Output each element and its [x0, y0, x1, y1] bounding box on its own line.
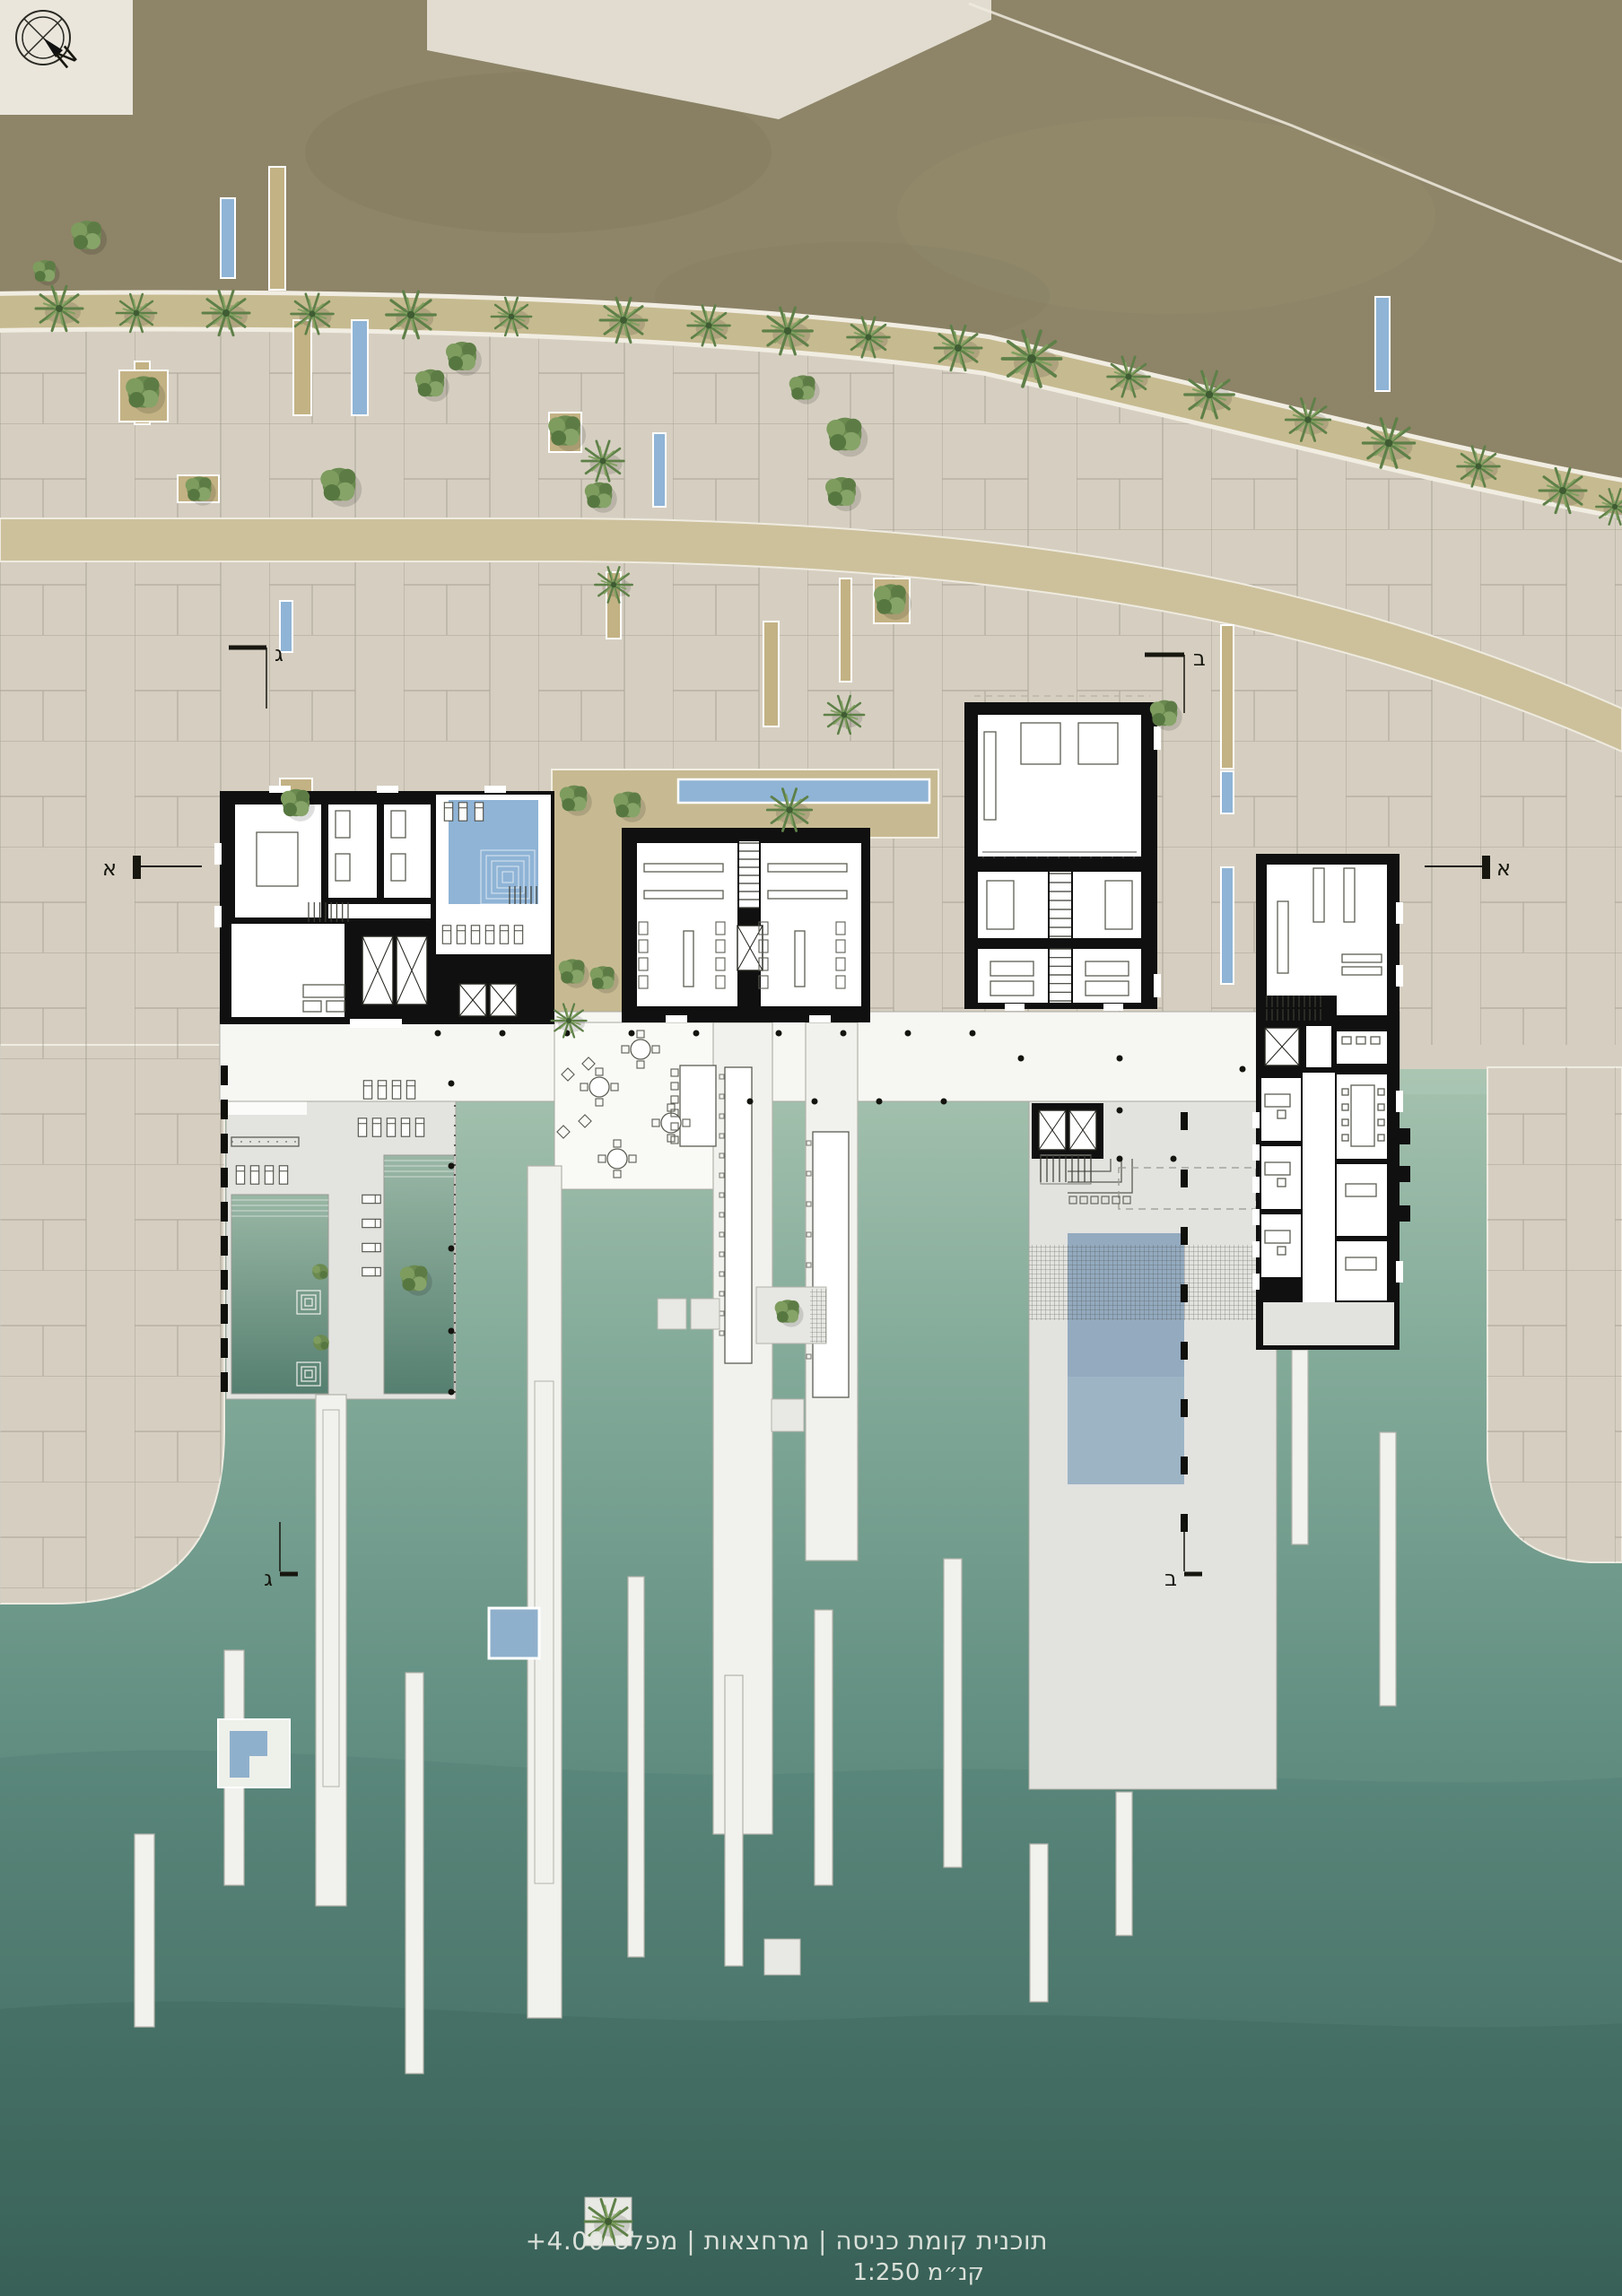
- waterside-terrace: [1263, 1302, 1394, 1345]
- lounge-chair-icon: [265, 1166, 273, 1184]
- colonnade-dash: [1181, 1342, 1188, 1360]
- dashed-wall-segment: [221, 1270, 228, 1290]
- lounge-chair-icon: [444, 803, 452, 821]
- column-dot: [776, 1031, 782, 1037]
- elevator-shaft: [397, 936, 427, 1004]
- lounge-chair-icon: [415, 1118, 423, 1136]
- column-dot: [1117, 1108, 1123, 1114]
- column-dot: [841, 1031, 847, 1037]
- long-counter: [725, 1067, 752, 1363]
- lounge-chair-icon: [372, 1118, 380, 1136]
- column-dot: [629, 1031, 635, 1037]
- elevator-shaft: [490, 984, 517, 1016]
- elevator-shaft: [459, 984, 486, 1016]
- pier: [1030, 1844, 1048, 2002]
- dashed-wall-segment: [221, 1338, 228, 1358]
- column-dot: [747, 1099, 754, 1105]
- dashed-wall-segment: [221, 1236, 228, 1256]
- column-dot: [449, 1246, 455, 1252]
- column-dot: [449, 1328, 455, 1335]
- lounge-chair-icon: [279, 1166, 287, 1184]
- shrub-icon: [312, 1264, 328, 1280]
- column-dot: [1117, 1156, 1123, 1162]
- pergola-pool: [1068, 1377, 1184, 1484]
- column-dot: [693, 1031, 700, 1037]
- lounge-chair-icon: [471, 926, 479, 944]
- pier: [944, 1559, 962, 1867]
- lounge-chair-icon: [363, 1081, 371, 1099]
- lounge-chair-icon: [485, 926, 493, 944]
- lounge-chair-icon: [442, 926, 450, 944]
- svg-text:ג: ג: [275, 641, 283, 666]
- column-dot: [905, 1031, 911, 1037]
- dashed-wall-segment: [221, 1134, 228, 1153]
- pier: [528, 1166, 562, 2018]
- dashed-wall-segment: [221, 1372, 228, 1392]
- pier: [815, 1610, 833, 1885]
- building-treatment-rooms: [964, 696, 1161, 1011]
- lounge-chair-icon: [362, 1267, 380, 1275]
- pier: [1116, 1792, 1132, 1935]
- lounge-chair-icon: [387, 1118, 395, 1136]
- lounge-chair-icon: [457, 926, 465, 944]
- dashed-wall-segment: [221, 1065, 228, 1085]
- column-dot: [941, 1099, 947, 1105]
- site-plan-drawing: א א ב ב ג ג: [0, 0, 1622, 2296]
- column-dot: [500, 1031, 506, 1037]
- lobby: [231, 924, 344, 1017]
- pier: [135, 1834, 154, 2027]
- plan-scale: קנ״מ 1:250: [853, 2259, 984, 2286]
- svg-text:ג: ג: [264, 1566, 273, 1591]
- column-dot: [876, 1099, 883, 1105]
- column-dot: [1117, 1056, 1123, 1062]
- lounge-chair-icon: [401, 1118, 409, 1136]
- dashed-wall-segment: [221, 1304, 228, 1324]
- svg-text:א: א: [1496, 856, 1511, 881]
- elevator-shaft: [362, 936, 393, 1004]
- sea-pool-deck: [226, 1065, 456, 1399]
- elevator-shaft: [1265, 1028, 1299, 1065]
- column-dot: [970, 1031, 976, 1037]
- lounge-chair-icon: [362, 1243, 380, 1251]
- lounge-chair-icon: [362, 1195, 380, 1203]
- lounge-chair-icon: [362, 1219, 380, 1227]
- plan-scale-prefix: קנ״מ: [928, 2259, 984, 2286]
- lounge-chair-icon: [378, 1081, 386, 1099]
- site-plan-page: א א ב ב ג ג: [0, 0, 1622, 2296]
- plan-scale-value: 1:250: [853, 2259, 920, 2286]
- svg-text:ב: ב: [1164, 1566, 1177, 1591]
- column-dot: [435, 1031, 441, 1037]
- pergola-pool-deck: [1029, 1099, 1277, 1789]
- dashed-wall-segment: [221, 1100, 228, 1119]
- column-dot: [1240, 1066, 1246, 1073]
- svg-text:ב: ב: [1193, 646, 1206, 671]
- plan-title: תוכנית קומת כניסה | מרחצאות | מפלס +4.00: [526, 2226, 1048, 2256]
- pier: [725, 1675, 743, 1966]
- bar-counter: [680, 1065, 716, 1146]
- cafe-table: [589, 1077, 609, 1097]
- pier: [1292, 1350, 1308, 1544]
- elevator-shaft: [1039, 1110, 1066, 1150]
- lounge-chair-icon: [236, 1166, 244, 1184]
- colonnade-dash: [1181, 1457, 1188, 1474]
- cafe-table: [631, 1039, 650, 1059]
- colonnade-dash: [1181, 1170, 1188, 1187]
- lounge-chair-icon: [358, 1118, 366, 1136]
- plan-level-value: +4.00: [526, 2226, 605, 2256]
- pier: [405, 1673, 423, 2074]
- lounge-chair-icon: [250, 1166, 258, 1184]
- column-dot: [449, 1163, 455, 1170]
- column-dot: [449, 1389, 455, 1396]
- shrub-icon: [313, 1335, 329, 1351]
- pier: [1380, 1432, 1396, 1706]
- dashed-wall-segment: [221, 1168, 228, 1187]
- svg-text:א: א: [102, 856, 117, 881]
- column-dot: [1171, 1156, 1177, 1162]
- lounge-chair-icon: [406, 1081, 414, 1099]
- pergola-trellis: [1029, 1245, 1277, 1320]
- column-dot: [449, 1081, 455, 1087]
- colonnade-dash: [1181, 1112, 1188, 1130]
- column-dot: [1018, 1056, 1025, 1062]
- kiosk-counter: [813, 1132, 849, 1397]
- plan-title-text: תוכנית קומת כניסה | מרחצאות | מפלס: [613, 2226, 1048, 2256]
- pier: [628, 1577, 644, 1957]
- colonnade-dash: [1181, 1227, 1188, 1245]
- dashed-wall-segment: [221, 1202, 228, 1222]
- sea-water-pool: [231, 1195, 328, 1394]
- colonnade-dash: [1181, 1284, 1188, 1302]
- column-dot: [812, 1099, 818, 1105]
- lounge-chair-icon: [500, 926, 508, 944]
- lounge-chair-icon: [458, 803, 467, 821]
- cafe-table: [607, 1149, 627, 1169]
- lounge-chair-icon: [392, 1081, 400, 1099]
- elevator-shaft: [1069, 1110, 1096, 1150]
- building-east-offices: [1252, 854, 1410, 1350]
- lounge-chair-icon: [514, 926, 522, 944]
- pier: [316, 1395, 346, 1906]
- colonnade-dash: [1181, 1399, 1188, 1417]
- lounge-chair-icon: [475, 803, 483, 821]
- float-pool-platform: [489, 1608, 539, 1658]
